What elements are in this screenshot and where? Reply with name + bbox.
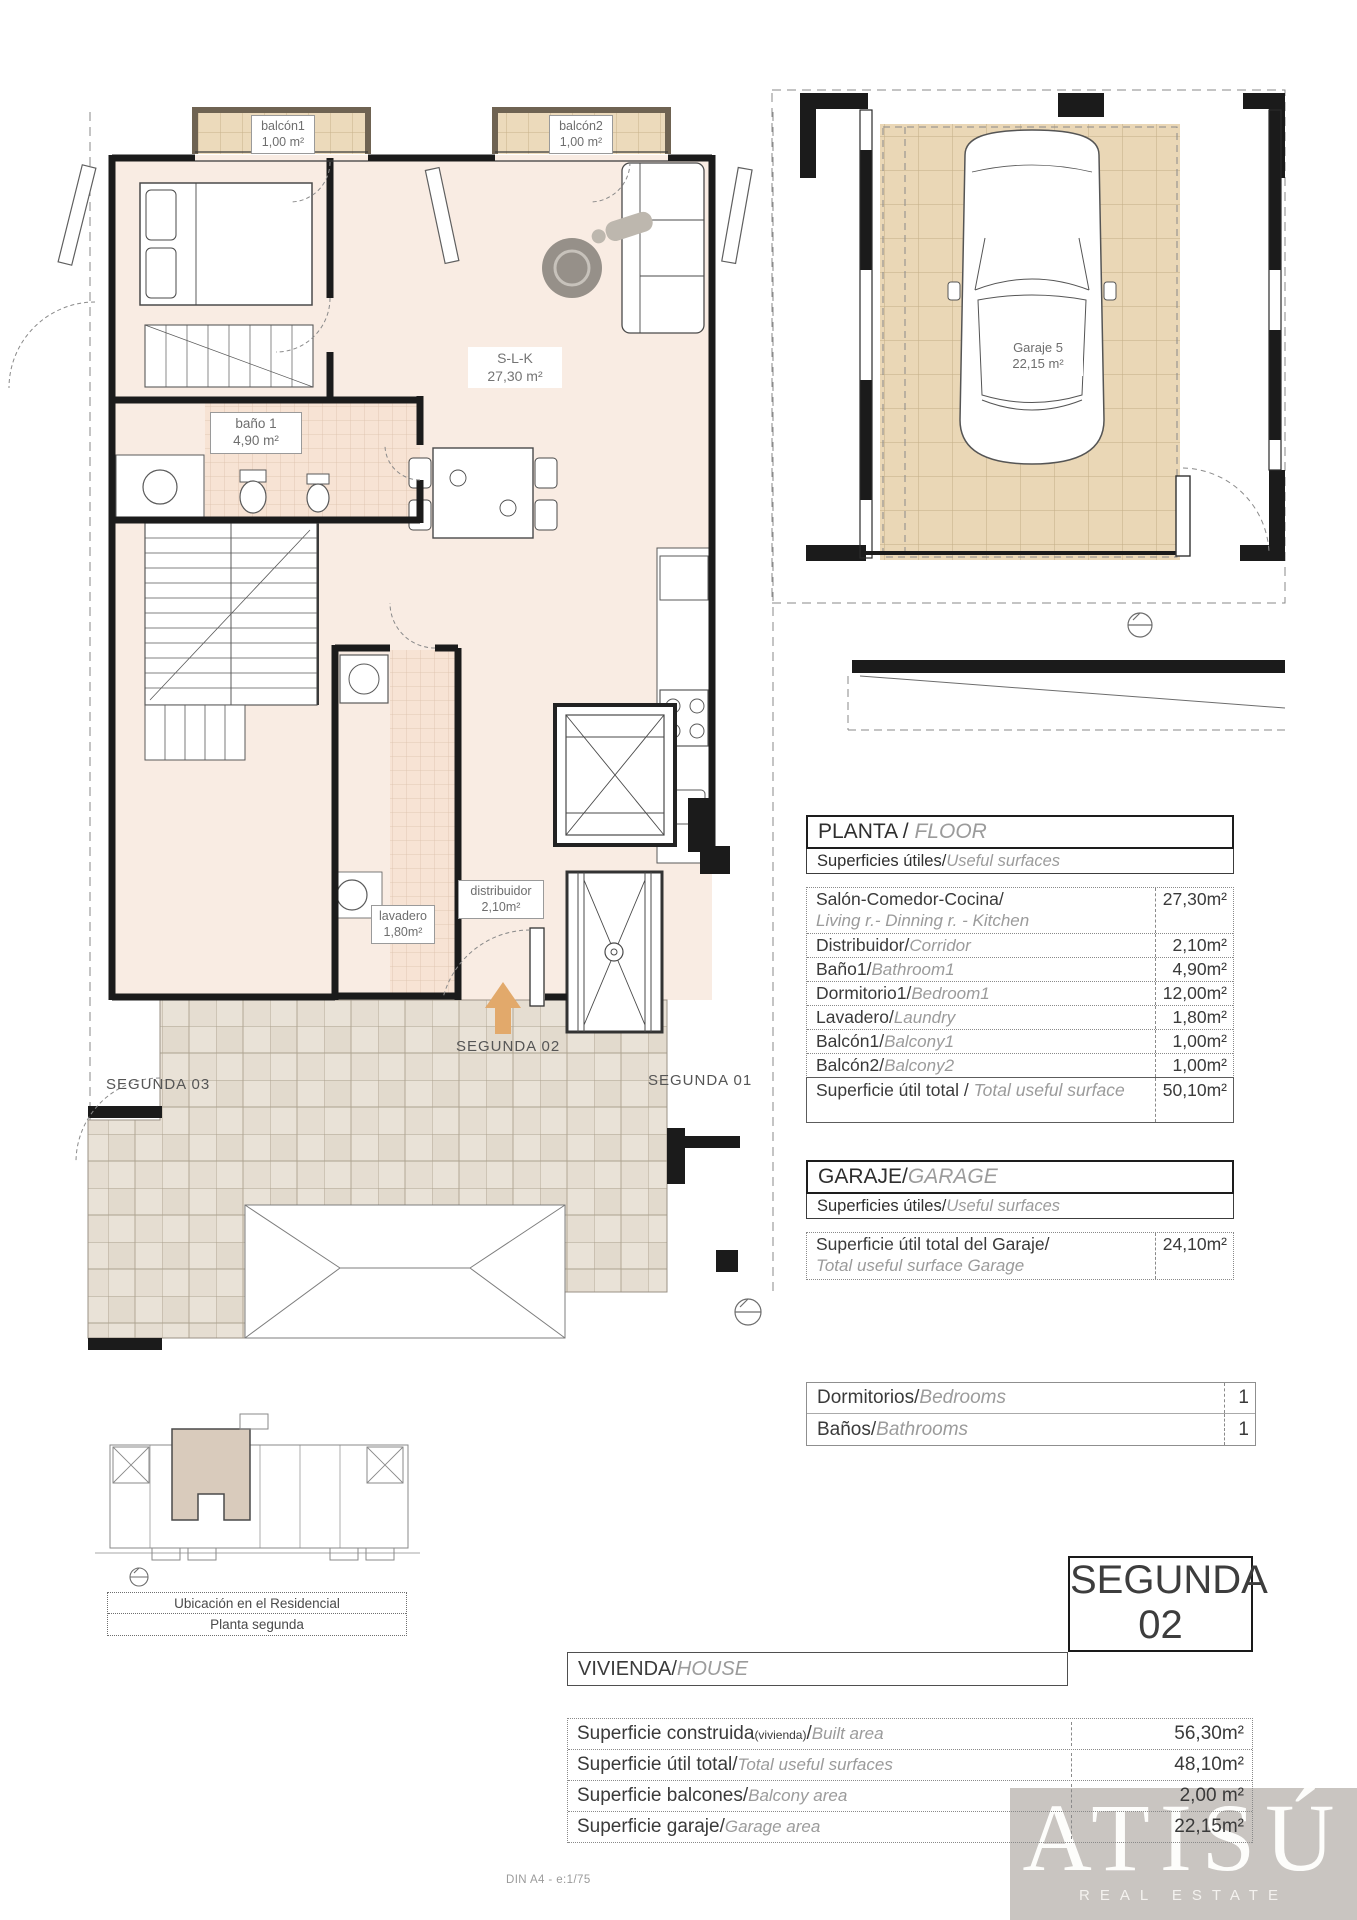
sofa bbox=[622, 163, 704, 333]
sheet-scale-note: DIN A4 - e:1/75 bbox=[506, 1874, 591, 1886]
light-shaft bbox=[555, 705, 675, 845]
table-row: Dormitorio1/Bedroom1 12,00m² bbox=[807, 982, 1233, 1006]
neighbor-right-label: SEGUNDA 01 bbox=[648, 1072, 752, 1089]
main-floor-plan bbox=[9, 108, 773, 1350]
neighbor-left-label: SEGUNDA 03 bbox=[106, 1076, 210, 1093]
table-row: Superficie balcones/Balcony area 2,00 m² bbox=[568, 1781, 1252, 1812]
table-row: Baños/Bathrooms 1 bbox=[807, 1414, 1255, 1445]
entry-unit-label: SEGUNDA 02 bbox=[456, 1038, 560, 1055]
pocket-door bbox=[530, 928, 544, 1006]
table-row: Superficie útil total del Garaje/Total u… bbox=[807, 1233, 1233, 1279]
hall-label: distribuidor 2,10m² bbox=[458, 880, 544, 919]
garage-surfaces-table: GARAJE/GARAGE Superficies útiles/Useful … bbox=[806, 1160, 1234, 1280]
laundry-label: lavadero 1,80m² bbox=[371, 905, 435, 944]
location-map bbox=[95, 1414, 420, 1586]
table-row: Superficie construida(vivienda)/Built ar… bbox=[568, 1719, 1252, 1750]
garage-plan bbox=[772, 90, 1285, 730]
garage-door bbox=[1176, 476, 1190, 556]
rooms-count-table: Dormitorios/Bedrooms 1 Baños/Bathrooms 1 bbox=[806, 1382, 1256, 1446]
table-row: Superficie garaje/Garage area 22,15m² bbox=[568, 1812, 1252, 1843]
balcony1-label: balcón1 1,00 m² bbox=[251, 115, 315, 154]
plan-sheet: balcón1 1,00 m² balcón2 1,00 m² S-L-K 27… bbox=[0, 0, 1357, 1920]
bed bbox=[140, 183, 312, 305]
house-surfaces-table: Superficie construida(vivienda)/Built ar… bbox=[567, 1718, 1253, 1843]
compass-icon bbox=[1128, 613, 1152, 637]
table-row: Salón-Comedor-Cocina/Living r.- Dinning … bbox=[807, 888, 1233, 934]
floor-table-title: PLANTA / FLOOR bbox=[806, 815, 1234, 849]
table-row: Superficie útil total/Total useful surfa… bbox=[568, 1750, 1252, 1781]
compass-icon bbox=[735, 1299, 761, 1325]
table-row: Baño1/Bathroom1 4,90m² bbox=[807, 958, 1233, 982]
table-row: Balcón1/Balcony1 1,00m² bbox=[807, 1030, 1233, 1054]
garage-stall-label: Garaje 5 22,15 m² bbox=[993, 337, 1083, 376]
rug bbox=[542, 238, 602, 298]
highlighted-unit bbox=[172, 1429, 250, 1520]
wardrobe bbox=[145, 325, 313, 387]
ramp bbox=[848, 660, 1285, 730]
unit-badge: SEGUNDA 02 bbox=[1068, 1556, 1253, 1652]
bathroom-label: baño 1 4,90 m² bbox=[210, 412, 302, 454]
compass-icon bbox=[130, 1568, 148, 1586]
table-row: Distribuidor/Corridor 2,10m² bbox=[807, 934, 1233, 958]
floor-total-row: Superficie útil total / Total useful sur… bbox=[806, 1077, 1234, 1123]
floor-surfaces-table: PLANTA / FLOOR Superficies útiles/Useful… bbox=[806, 815, 1234, 1123]
table-row: Lavadero/Laundry 1,80m² bbox=[807, 1006, 1233, 1030]
location-caption: Ubicación en el Residencial Planta segun… bbox=[107, 1592, 407, 1636]
car bbox=[948, 130, 1116, 464]
floor-table-subtitle: Superficies útiles/Useful surfaces bbox=[806, 849, 1234, 874]
garage-table-title: GARAJE/GARAGE bbox=[806, 1160, 1234, 1194]
table-row: Dormitorios/Bedrooms 1 bbox=[807, 1383, 1255, 1414]
garage-table-subtitle: Superficies útiles/Useful surfaces bbox=[806, 1194, 1234, 1219]
table-row: Balcón2/Balcony2 1,00m² bbox=[807, 1054, 1233, 1078]
elevator bbox=[567, 872, 662, 1032]
roof-outline bbox=[245, 1205, 565, 1338]
house-table-title: VIVIENDA/HOUSE bbox=[567, 1652, 1068, 1686]
living-room-label: S-L-K 27,30 m² bbox=[468, 347, 562, 388]
balcony2-label: balcón2 1,00 m² bbox=[549, 115, 613, 154]
